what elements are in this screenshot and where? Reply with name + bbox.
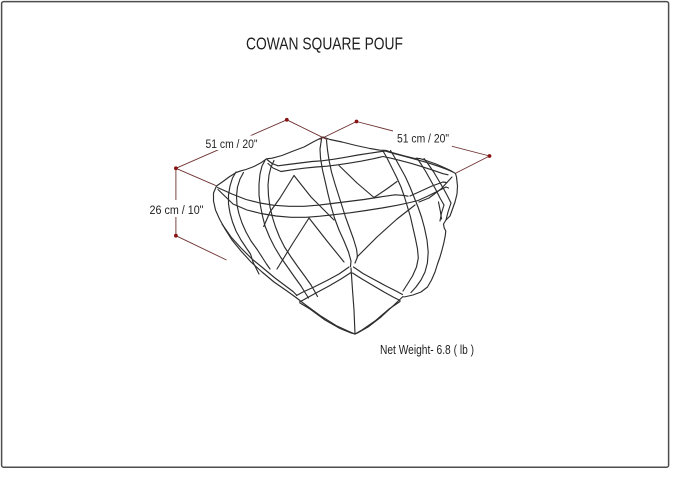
svg-text:26 cm / 10": 26 cm / 10": [150, 203, 204, 217]
svg-text:COWAN SQUARE POUF: COWAN SQUARE POUF: [246, 34, 403, 54]
svg-text:Net Weight- 6.8 ( lb ): Net Weight- 6.8 ( lb ): [380, 342, 474, 357]
svg-text:51 cm / 20": 51 cm / 20": [397, 132, 449, 146]
svg-text:51 cm / 20": 51 cm / 20": [206, 137, 258, 151]
